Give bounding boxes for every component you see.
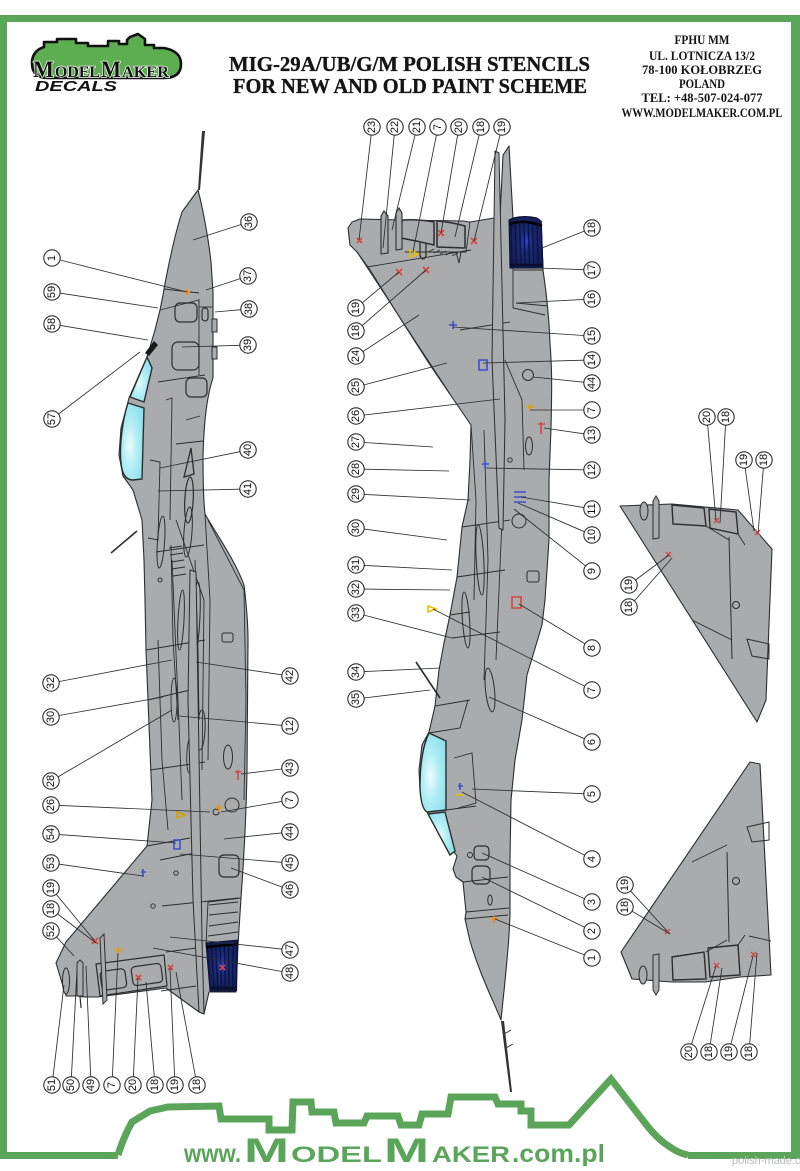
- svg-text:FOR NEW AND OLD PAINT SCHEME: FOR NEW AND OLD PAINT SCHEME: [233, 74, 587, 98]
- svg-text:UL. LOTNICZA 13/2: UL. LOTNICZA 13/2: [649, 49, 755, 63]
- svg-text:35: 35: [350, 693, 362, 705]
- svg-text:29: 29: [350, 488, 362, 500]
- svg-text:15: 15: [586, 330, 598, 342]
- svg-text:2: 2: [586, 928, 598, 934]
- svg-text:46: 46: [284, 884, 296, 896]
- svg-text:FPHU MM: FPHU MM: [675, 33, 730, 47]
- svg-text:19: 19: [738, 454, 750, 466]
- svg-text:45: 45: [284, 857, 296, 869]
- svg-text:18: 18: [758, 454, 770, 466]
- svg-text:19: 19: [45, 882, 57, 894]
- svg-text:36: 36: [243, 216, 255, 228]
- svg-text:49: 49: [85, 1079, 97, 1091]
- svg-text:18: 18: [45, 903, 57, 915]
- svg-text:18: 18: [149, 1079, 161, 1091]
- svg-text:DECALS: DECALS: [35, 79, 117, 95]
- svg-text:22: 22: [389, 121, 401, 133]
- svg-text:28: 28: [350, 463, 362, 475]
- svg-text:7: 7: [586, 407, 598, 413]
- svg-text:12: 12: [284, 720, 296, 732]
- svg-text:27: 27: [350, 436, 362, 448]
- svg-text:30: 30: [350, 522, 362, 534]
- svg-text:43: 43: [284, 762, 296, 774]
- svg-text:POLAND: POLAND: [679, 77, 725, 91]
- svg-text:18: 18: [619, 901, 631, 913]
- svg-text:58: 58: [46, 318, 58, 330]
- svg-text:28: 28: [45, 775, 57, 787]
- svg-text:51: 51: [46, 1079, 58, 1091]
- svg-text:18: 18: [350, 325, 362, 337]
- svg-text:20: 20: [701, 411, 713, 423]
- svg-text:5: 5: [586, 791, 598, 797]
- svg-text:53: 53: [45, 857, 57, 869]
- svg-text:AKER: AKER: [122, 64, 169, 81]
- svg-text:54: 54: [45, 828, 57, 840]
- svg-text:M: M: [244, 1132, 289, 1166]
- svg-text:17: 17: [586, 264, 598, 276]
- svg-text:11: 11: [586, 503, 598, 514]
- svg-text:8: 8: [586, 645, 598, 651]
- svg-text:52: 52: [45, 925, 57, 937]
- svg-text:18: 18: [703, 1046, 715, 1058]
- svg-text:WWW.MODELMAKER.COM.PL: WWW.MODELMAKER.COM.PL: [622, 106, 783, 120]
- svg-text:12: 12: [586, 464, 598, 476]
- svg-text:44: 44: [586, 377, 598, 389]
- svg-text:41: 41: [242, 483, 254, 495]
- svg-text:13: 13: [586, 429, 598, 441]
- svg-text:78-100 KOŁOBRZEG: 78-100 KOŁOBRZEG: [642, 63, 762, 77]
- svg-text:32: 32: [45, 677, 57, 689]
- svg-text:42: 42: [284, 670, 296, 682]
- svg-text:34: 34: [350, 666, 362, 678]
- svg-text:26: 26: [350, 410, 362, 422]
- svg-text:14: 14: [586, 354, 598, 366]
- svg-text:ODEL: ODEL: [291, 1142, 382, 1166]
- svg-text:.com.pl: .com.pl: [512, 1140, 605, 1166]
- svg-text:10: 10: [586, 529, 598, 541]
- svg-text:31: 31: [350, 559, 362, 571]
- svg-text:TEL: +48-507-024-077: TEL: +48-507-024-077: [642, 91, 763, 105]
- svg-text:19: 19: [350, 302, 362, 314]
- svg-text:AKER: AKER: [432, 1142, 510, 1166]
- svg-text:26: 26: [45, 799, 57, 811]
- svg-text:18: 18: [623, 601, 635, 613]
- svg-text:19: 19: [619, 879, 631, 891]
- svg-text:40: 40: [242, 444, 254, 456]
- svg-text:38: 38: [243, 303, 255, 315]
- svg-text:24: 24: [350, 350, 362, 362]
- svg-text:20: 20: [127, 1079, 139, 1091]
- svg-text:7: 7: [586, 687, 598, 693]
- svg-text:48: 48: [284, 967, 296, 979]
- svg-text:25: 25: [350, 381, 362, 393]
- svg-text:37: 37: [242, 270, 254, 282]
- svg-text:4: 4: [586, 856, 598, 862]
- svg-text:23: 23: [366, 121, 378, 133]
- svg-text:www.: www.: [183, 1140, 241, 1166]
- svg-text:30: 30: [45, 711, 57, 723]
- svg-text:19: 19: [723, 1046, 735, 1058]
- svg-text:6: 6: [586, 739, 598, 745]
- svg-text:44: 44: [284, 826, 296, 838]
- svg-text:polish-made.com: polish-made.com: [732, 1155, 800, 1166]
- svg-text:59: 59: [46, 286, 58, 298]
- svg-text:18: 18: [475, 121, 487, 133]
- svg-text:MIG-29A/UB/G/M POLISH STENCILS: MIG-29A/UB/G/M POLISH STENCILS: [229, 52, 590, 76]
- svg-text:57: 57: [46, 413, 58, 425]
- svg-text:21: 21: [411, 121, 423, 133]
- svg-text:47: 47: [284, 944, 296, 956]
- svg-text:33: 33: [350, 607, 362, 619]
- svg-text:7: 7: [106, 1082, 118, 1088]
- svg-text:18: 18: [586, 222, 598, 234]
- svg-text:19: 19: [169, 1079, 181, 1091]
- svg-text:18: 18: [743, 1046, 755, 1058]
- svg-text:20: 20: [683, 1046, 695, 1058]
- svg-text:1: 1: [46, 255, 58, 261]
- svg-text:7: 7: [432, 124, 444, 130]
- svg-text:7: 7: [284, 797, 296, 803]
- svg-text:32: 32: [350, 583, 362, 595]
- svg-text:39: 39: [242, 339, 254, 351]
- svg-text:20: 20: [453, 121, 465, 133]
- svg-text:1: 1: [586, 955, 598, 961]
- svg-text:9: 9: [586, 568, 598, 574]
- svg-text:18: 18: [720, 411, 732, 423]
- svg-text:19: 19: [623, 579, 635, 591]
- svg-text:3: 3: [586, 899, 598, 905]
- svg-text:18: 18: [191, 1079, 203, 1091]
- svg-text:50: 50: [65, 1079, 77, 1091]
- svg-text:16: 16: [586, 293, 598, 305]
- svg-text:19: 19: [496, 121, 508, 133]
- svg-text:M: M: [384, 1132, 429, 1166]
